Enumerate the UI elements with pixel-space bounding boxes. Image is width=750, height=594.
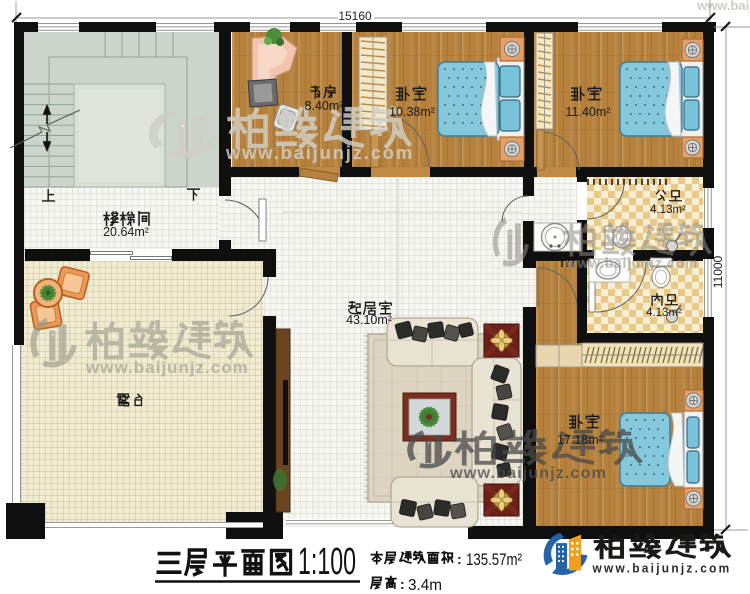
svg-text:4.13m²: 4.13m² bbox=[650, 204, 686, 216]
svg-text:43.10m²: 43.10m² bbox=[346, 313, 392, 327]
svg-text:www.baijunjz.com: www.baijunjz.com bbox=[592, 561, 732, 576]
svg-text:10.38m²: 10.38m² bbox=[389, 105, 435, 119]
svg-text::: : bbox=[457, 551, 462, 567]
svg-text:3.4m: 3.4m bbox=[408, 577, 442, 594]
svg-text:17.18m²: 17.18m² bbox=[557, 433, 603, 447]
svg-text:15160: 15160 bbox=[338, 9, 372, 23]
svg-text::: : bbox=[400, 576, 405, 592]
svg-text:11000: 11000 bbox=[711, 255, 725, 288]
svg-text:1:100: 1:100 bbox=[298, 541, 356, 583]
svg-text:www.baijunjz.com: www.baijunjz.com bbox=[85, 358, 249, 377]
svg-text:www.baijunjz.com: www.baijunjz.com bbox=[225, 143, 414, 163]
svg-text:135.57m²: 135.57m² bbox=[466, 550, 522, 569]
svg-text:www.baijunjz.com: www.baijunjz.com bbox=[449, 465, 607, 482]
svg-text:20.64m²: 20.64m² bbox=[103, 225, 149, 239]
svg-text:www.baijunjz.com: www.baijunjz.com bbox=[565, 255, 698, 272]
svg-text:11.40m²: 11.40m² bbox=[566, 105, 611, 119]
svg-text:www.baij: www.baij bbox=[696, 0, 750, 13]
svg-text:4.13m²: 4.13m² bbox=[646, 307, 682, 319]
svg-text:8.40m²: 8.40m² bbox=[305, 99, 344, 113]
